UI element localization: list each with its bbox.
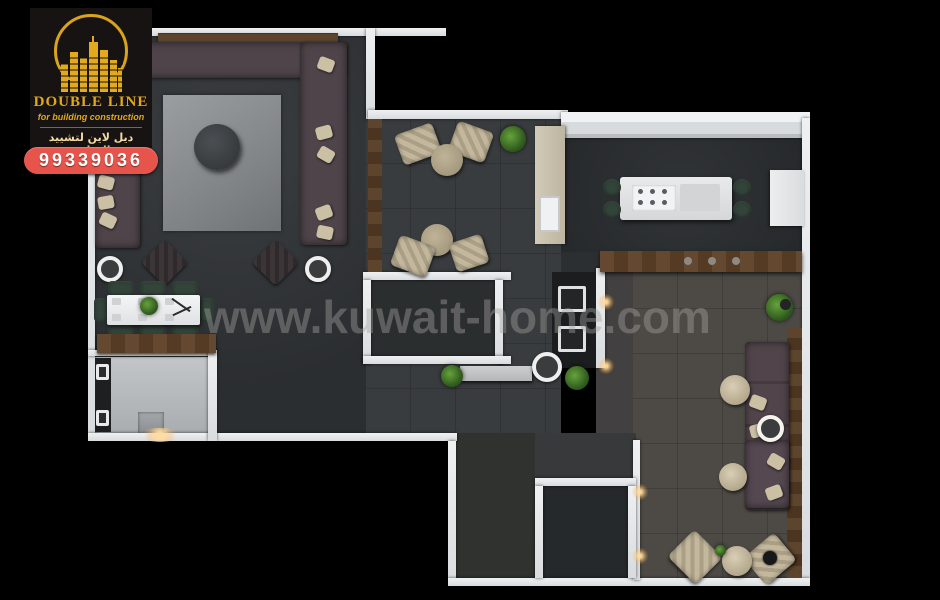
outer-wall-bottom [448, 578, 810, 586]
round-pouf [720, 375, 750, 405]
bar-stool [603, 201, 621, 218]
dining-chair [108, 281, 134, 296]
empty-room-b-floor [543, 486, 628, 578]
round-hall-table [532, 352, 562, 382]
basin [96, 410, 109, 426]
dining-chair [172, 281, 198, 296]
kitchen-top-wall-counter [561, 112, 810, 138]
round-side-table [305, 256, 331, 282]
wall-sconce-light [632, 548, 648, 564]
wood-panel [368, 119, 382, 272]
room-b-wall-right [628, 486, 636, 578]
cooktop-burner [638, 189, 643, 194]
basin [96, 364, 109, 380]
serving-board [680, 184, 720, 211]
sofa-pillow [97, 195, 115, 211]
skyline-buildings-icon [59, 36, 123, 94]
company-tagline: for building construction [30, 112, 152, 122]
round-coffee-table [431, 144, 463, 176]
round-ottoman [194, 124, 240, 170]
phone-badge: 99339036 [24, 147, 158, 174]
round-pouf [719, 463, 747, 491]
table-centerpiece-plant [140, 297, 158, 315]
phone-number: 99339036 [39, 150, 143, 171]
room-b-wall-left [535, 486, 543, 578]
round-side-table [757, 415, 784, 442]
room-b-wall-top [535, 478, 636, 486]
planter [500, 126, 526, 152]
hall-plant [565, 366, 589, 390]
place-setting [138, 314, 147, 321]
sideboard [97, 334, 216, 353]
bar-stool [603, 179, 621, 196]
console-table [460, 366, 532, 381]
bathroom-right-wall [208, 350, 217, 441]
wall-sconce-light [598, 358, 614, 374]
logo-divider [40, 127, 142, 128]
place-setting [112, 314, 121, 321]
kitchen-wood-counter [600, 251, 802, 272]
hall-plant [441, 365, 463, 387]
round-side-table [97, 256, 123, 282]
center-room-wall-bottom [363, 356, 511, 364]
tall-white-unit [770, 170, 804, 226]
counter-sink [539, 196, 560, 232]
majlis-right-wall [366, 28, 375, 119]
small-plant [715, 545, 726, 556]
counter-knob [684, 257, 692, 265]
outer-wall-vertical-step [448, 441, 456, 586]
place-setting [112, 298, 121, 305]
company-logo: DOUBLE LINE for building construction دي… [30, 8, 152, 148]
center-room-wall-top [363, 272, 511, 280]
floorplan-render: www.kuwait-home.com [0, 0, 940, 600]
kitchen-floor-strip [561, 252, 600, 272]
wall-sconce-light [632, 484, 648, 500]
family-wood-ledge [787, 328, 802, 578]
door-light-glow [140, 428, 180, 442]
dining-chair [94, 298, 107, 322]
company-name: DOUBLE LINE [30, 94, 152, 111]
dark-tray [763, 551, 777, 565]
round-pouf-table [722, 546, 752, 576]
plant-pot [780, 299, 791, 310]
bar-stool [733, 201, 751, 218]
hall-floor-a [456, 433, 535, 578]
watermark-text: www.kuwait-home.com [204, 290, 711, 344]
dining-chair [140, 281, 166, 296]
hall-floor-b [535, 433, 636, 478]
sitting-area-top-wall [368, 110, 568, 119]
bar-stool [733, 179, 751, 196]
